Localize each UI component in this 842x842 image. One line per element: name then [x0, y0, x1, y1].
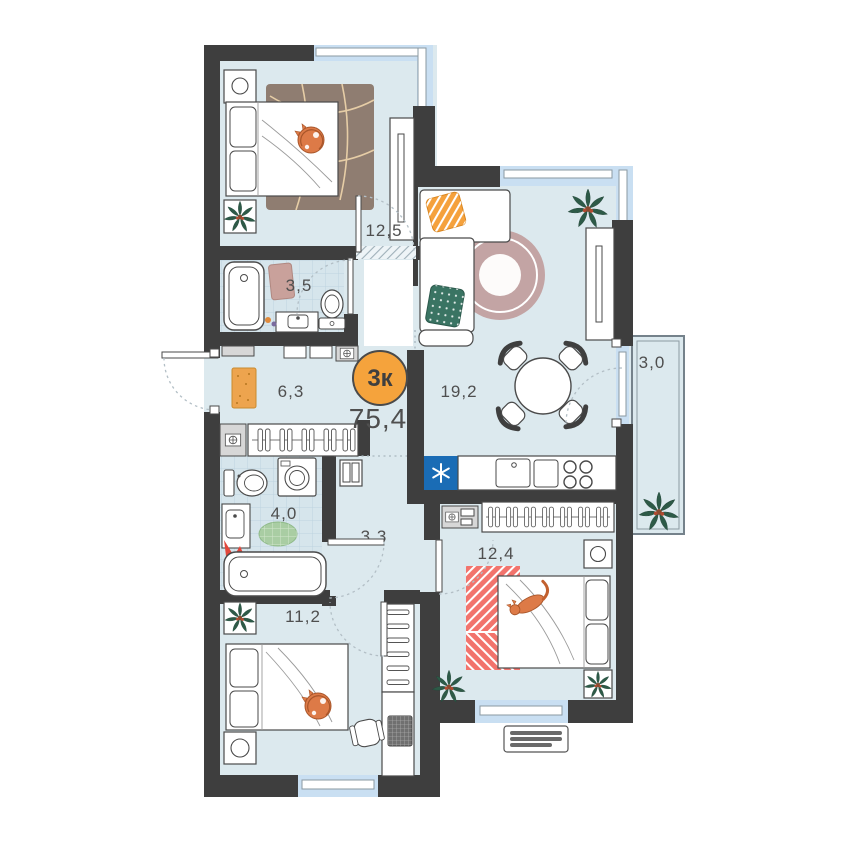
green-bath-mat — [259, 522, 297, 546]
entry-mat — [232, 368, 256, 408]
electrical-panel — [220, 424, 246, 456]
room-balcony: 3,0 — [632, 336, 684, 534]
bedroom-top-lamp-icon — [232, 78, 248, 94]
total-area-label: 75,4 — [349, 403, 408, 434]
soap-icon — [265, 317, 271, 323]
meter-icon-2 — [225, 434, 240, 446]
bedroom-right-area-label: 12,4 — [477, 544, 514, 563]
hall-cabinet — [340, 460, 362, 486]
bathroom-second-area-label: 4,0 — [271, 504, 298, 523]
floor-plan-page: 3,0 — [0, 0, 842, 842]
floor-plan-svg: 3,0 — [0, 0, 842, 842]
balcony-area-label: 3,0 — [639, 353, 666, 372]
kitchen — [424, 456, 616, 490]
window-bedroom-bottom — [296, 775, 380, 797]
pillow-teal — [425, 284, 465, 327]
meter-icon-3 — [446, 512, 459, 522]
bathtub-main — [224, 262, 264, 330]
bedroom-top-bed — [226, 102, 338, 196]
room-count-badge-label: 3к — [367, 365, 393, 392]
plan-summary: 3к 75,4 — [349, 351, 408, 434]
dining-table — [515, 358, 571, 414]
meter-icon — [340, 348, 354, 359]
toilet-second — [224, 470, 267, 496]
window-bedroom-right — [473, 700, 570, 723]
bedroom-right-lamp-icon — [591, 547, 606, 562]
bathroom-main-area-label: 3,5 — [286, 276, 313, 295]
soap-icon-2 — [272, 322, 277, 327]
coat-closet — [248, 424, 358, 456]
kitchen-sink — [496, 459, 530, 487]
laptop-icon — [388, 716, 412, 746]
ac-unit — [504, 726, 568, 752]
bedroom-bottom-area-label: 11,2 — [285, 607, 321, 626]
bedroom-bottom-lamp-icon — [231, 739, 249, 757]
bedroom-right-closet — [442, 502, 614, 532]
bathtub-second — [224, 552, 326, 596]
bedroom-right-bed — [498, 576, 610, 668]
living-area-label: 19,2 — [440, 382, 477, 401]
toilet-main — [319, 290, 345, 329]
bedroom-top-area-label: 12,5 — [365, 221, 402, 240]
living-wardrobe — [586, 228, 614, 340]
bedroom-bottom-bed — [226, 644, 348, 730]
hallway-entry-area-label: 6,3 — [278, 382, 305, 401]
washing-machine — [278, 458, 316, 496]
cutting-board — [534, 460, 558, 487]
